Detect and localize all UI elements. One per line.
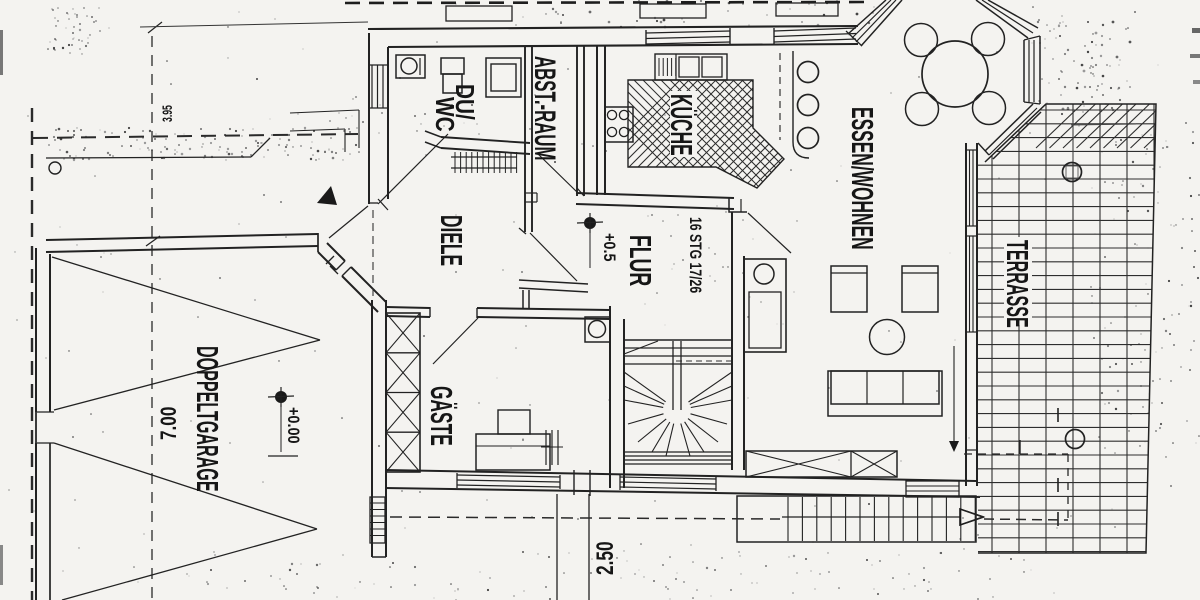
svg-text:ABST.-RAUM: ABST.-RAUM (528, 56, 561, 160)
svg-text:WC: WC (430, 97, 459, 132)
svg-text:3.95: 3.95 (160, 105, 176, 122)
svg-text:KÜCHE: KÜCHE (664, 94, 700, 156)
svg-text:DOPPELTGARAGE: DOPPELTGARAGE (189, 346, 223, 492)
svg-text:ESSEN/WOHNEN: ESSEN/WOHNEN (845, 107, 880, 250)
svg-text:GÄSTE: GÄSTE (424, 386, 459, 446)
svg-text:2.50: 2.50 (592, 541, 618, 575)
svg-text:7.00: 7.00 (157, 407, 182, 440)
svg-text:16 STG 17/26: 16 STG 17/26 (685, 217, 703, 293)
svg-text:+0.5: +0.5 (600, 233, 618, 262)
svg-text:FLUR: FLUR (623, 235, 657, 287)
svg-text:TERRASSE: TERRASSE (999, 240, 1033, 328)
svg-text:DIELE: DIELE (434, 215, 469, 266)
svg-text:+0.00: +0.00 (284, 407, 302, 444)
